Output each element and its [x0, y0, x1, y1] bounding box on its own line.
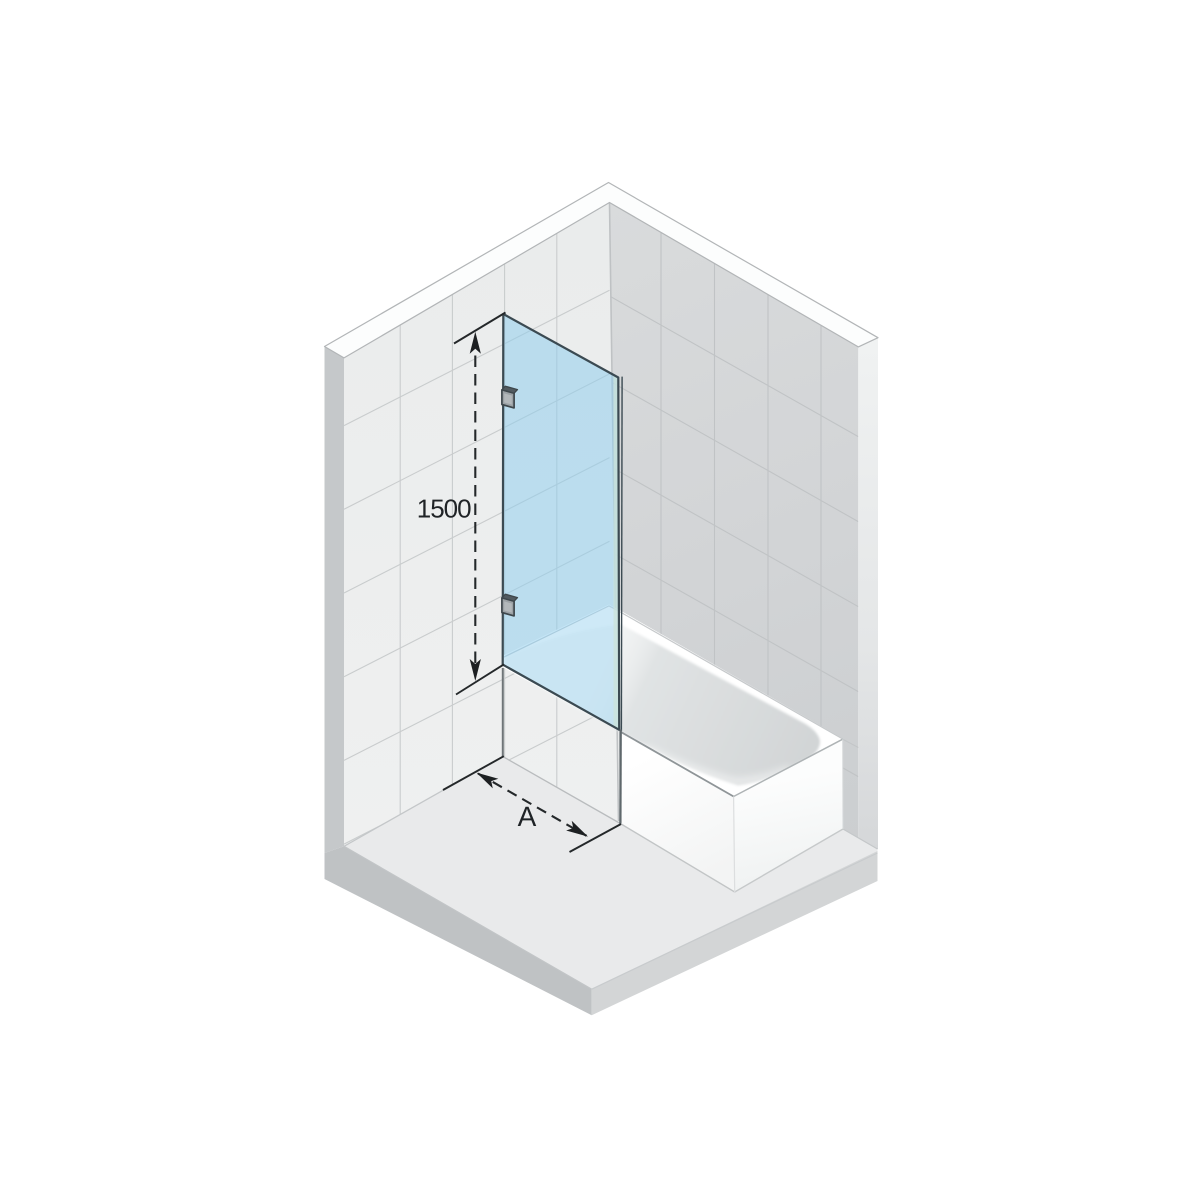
svg-text:A: A — [518, 801, 537, 832]
svg-text:1500: 1500 — [417, 494, 471, 524]
